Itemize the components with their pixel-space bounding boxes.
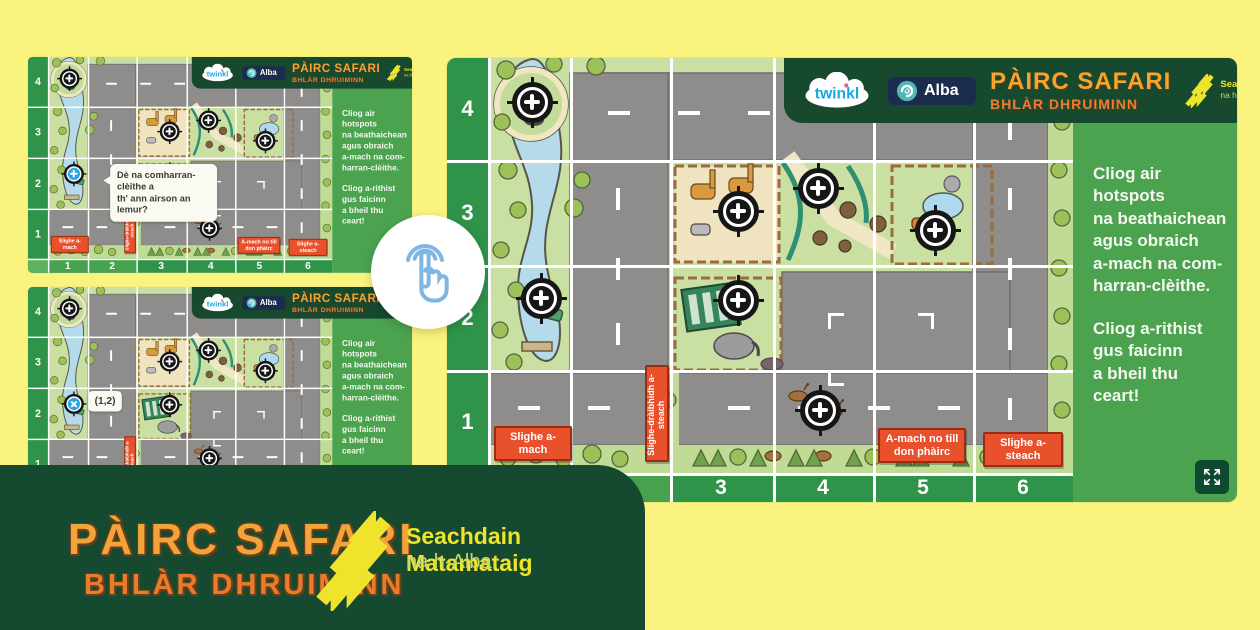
maths-week-logo: Seachdain Matamataig na h-Alba [387,65,412,82]
alba-swirl-icon [896,80,918,102]
alba-logo: Alba [888,77,976,105]
hotspot-cell-5-3[interactable] [912,207,959,254]
col-label-5: 5 [903,476,943,500]
grid-line [488,58,491,502]
row-label-1: 1 [28,228,48,241]
main-preview-panel: 4 3 2 1 1 2 3 4 5 6 Slighe a-mach Slighe… [447,58,1237,502]
instruction-paragraph-2: Cliog a-rithist gus faicinn a bheil thu … [342,183,407,227]
label-way-in: Slighe a-steach [983,432,1063,467]
activity-title-line1: PÀIRC SAFARI [990,70,1171,94]
activity-title-line2: BHLÀR DHRUIMINN [292,306,380,313]
row-label-3: 3 [28,126,48,139]
page: 4 3 2 1 1 2 3 4 5 6 Slighe a-mach Slighe… [0,0,1260,630]
label-way-out: Slighe a-mach [494,426,572,461]
col-label-4: 4 [803,476,843,500]
alba-logo: Alba [242,296,285,310]
instruction-paragraph-1: Cliog air hotspots na beathaichean agus … [342,338,407,403]
alba-swirl-icon [246,297,257,308]
maths-week-text-line2: na h-Alba [406,551,492,574]
panel-header: twinkl Alba PÀIRC SAFARI BHLÀR DHRUIMINN [784,58,1237,123]
twinkl-logo-text: twinkl [815,85,860,102]
maths-week-zigzag-icon [316,511,396,611]
row-label-1: 1 [447,409,488,435]
activity-title-line2: BHLÀR DHRUIMINN [292,76,380,83]
col-label-1: 1 [58,260,77,272]
hotspot-cell-1-4[interactable] [509,79,556,126]
col-label-5: 5 [250,260,269,272]
activity-title: PÀIRC SAFARI BHLÀR DHRUIMINN [292,63,380,83]
row-label-3: 3 [28,356,48,369]
resource-title-banner: PÀIRC SAFARI BHLÀR DHRUIMINN Seachdain M… [0,465,645,630]
column-axis: 1 2 3 4 5 6 [28,259,332,273]
grid-line [973,58,976,502]
hotspot-cell-1-2[interactable] [62,162,85,185]
hotspot-cell-3-3[interactable] [715,188,762,235]
label-exit-or-return: A-mach no till don phàirc [238,237,281,254]
activity-title-line1: PÀIRC SAFARI [292,293,380,305]
tap-hand-icon [390,234,466,310]
col-label-3: 3 [151,260,170,272]
grid-line [28,158,332,159]
hotspot-cell-4-1[interactable] [797,387,844,434]
hotspot-cell-1-4[interactable] [58,297,81,320]
alba-logo-text: Alba [260,68,277,77]
twinkl-logo-text: twinkl [207,299,229,308]
grid-line [48,57,49,273]
grid-line [235,57,236,273]
grid-line [284,57,285,273]
alba-logo-text: Alba [260,298,277,307]
instruction-paragraph-1: Cliog air hotspots na beathaichean agus … [342,108,407,173]
label-way-out: Slighe a-mach [51,236,89,253]
hotspot-cell-1-2[interactable] [62,392,85,415]
twinkl-logo: twinkl [200,294,236,312]
row-axis: 4 3 2 1 [28,57,48,273]
col-label-6: 6 [1003,476,1043,500]
hotspot-cell-3-2[interactable] [158,393,181,416]
grid-line [28,107,332,108]
twinkl-logo: twinkl [800,72,874,110]
activity-title: PÀIRC SAFARI BHLÀR DHRUIMINN [990,70,1171,111]
grid-line [873,58,876,502]
alba-logo-text: Alba [924,82,959,100]
instruction-paragraph-2: Cliog a-rithist gus faicinn a bheil thu … [1093,318,1227,408]
fullscreen-expand-icon [1201,466,1223,488]
axis-corner [28,259,48,273]
grid-line [773,58,776,502]
label-way-in: Slighe a-steach [289,239,328,256]
col-label-2: 2 [102,260,121,272]
grid-line [447,160,1073,163]
twinkl-logo: twinkl [200,64,236,82]
grid-line [447,265,1073,268]
row-label-4: 4 [28,75,48,88]
thumbnail-question[interactable]: 4 3 2 1 1 2 3 4 5 6 Slighe a-mach Slighe… [28,57,412,273]
label-exit-or-return: A-mach no till don phàirc [878,428,966,463]
col-label-3: 3 [701,476,741,500]
row-label-4: 4 [447,96,488,122]
maths-week-zigzag-icon [387,65,402,82]
hotspot-cell-4-3[interactable] [197,339,220,362]
label-drive-in: Slighe-dràibhidh a-steach [645,365,669,462]
hotspot-cell-5-3[interactable] [254,129,277,152]
maths-week-logo: Seachdain Matamataig na h-Alba [1185,74,1237,108]
hotspot-cell-3-3[interactable] [158,350,181,373]
instruction-paragraph-2: Cliog a-rithist gus faicinn a bheil thu … [342,413,407,457]
grid-line [28,259,332,260]
maths-week-text-line2: na h-Alba [1220,91,1237,101]
hotspot-cell-4-3[interactable] [795,165,842,212]
hotspot-cell-1-2[interactable] [518,275,565,322]
grid-line [28,388,332,389]
answer-coordinate-label: (1,2) [88,391,122,411]
alba-swirl-icon [246,67,257,78]
col-label-4: 4 [201,260,220,272]
row-label-4: 4 [28,305,48,318]
grid-line [447,370,1073,373]
fullscreen-button[interactable] [1195,460,1229,494]
instructions-sidebar: Cliog air hotspots na beathaichean agus … [1073,58,1237,502]
panel-header: twinkl Alba PÀIRC SAFARI BHLÀR DHRUIMINN [192,57,412,89]
hotspot-cell-3-2[interactable] [715,277,762,324]
row-label-2: 2 [28,407,48,420]
instruction-paragraph-1: Cliog air hotspots na beathaichean agus … [1093,163,1227,298]
safari-map-panel: 4 3 2 1 1 2 3 4 5 6 Slighe a-mach Slighe… [447,58,1237,502]
hotspot-cell-3-3[interactable] [158,120,181,143]
maths-week-text-line2: na h-Alba [404,73,412,78]
activity-title: PÀIRC SAFARI BHLÀR DHRUIMINN [292,293,380,313]
col-label-6: 6 [298,260,317,272]
safari-map-panel: 4 3 2 1 1 2 3 4 5 6 Slighe a-mach Slighe… [28,57,412,273]
twinkl-logo-text: twinkl [207,69,229,78]
label-drive-in-text: Slighe-dràibhidh a-steach [645,368,669,462]
activity-title-line1: PÀIRC SAFARI [292,63,380,75]
grid-line [28,439,332,440]
hotspot-cell-5-3[interactable] [254,359,277,382]
click-indicator [371,215,485,329]
activity-title-line2: BHLÀR DHRUIMINN [990,97,1171,111]
maths-week-zigzag-icon [1185,74,1215,108]
grid-line [28,337,332,338]
row-label-2: 2 [28,177,48,190]
hotspot-cell-1-4[interactable] [58,67,81,90]
question-bubble: Dè na comharran-clèithe a th' ann airson… [110,164,217,222]
hotspot-cell-4-3[interactable] [197,109,220,132]
alba-logo: Alba [242,66,285,80]
grid-line [670,58,673,502]
